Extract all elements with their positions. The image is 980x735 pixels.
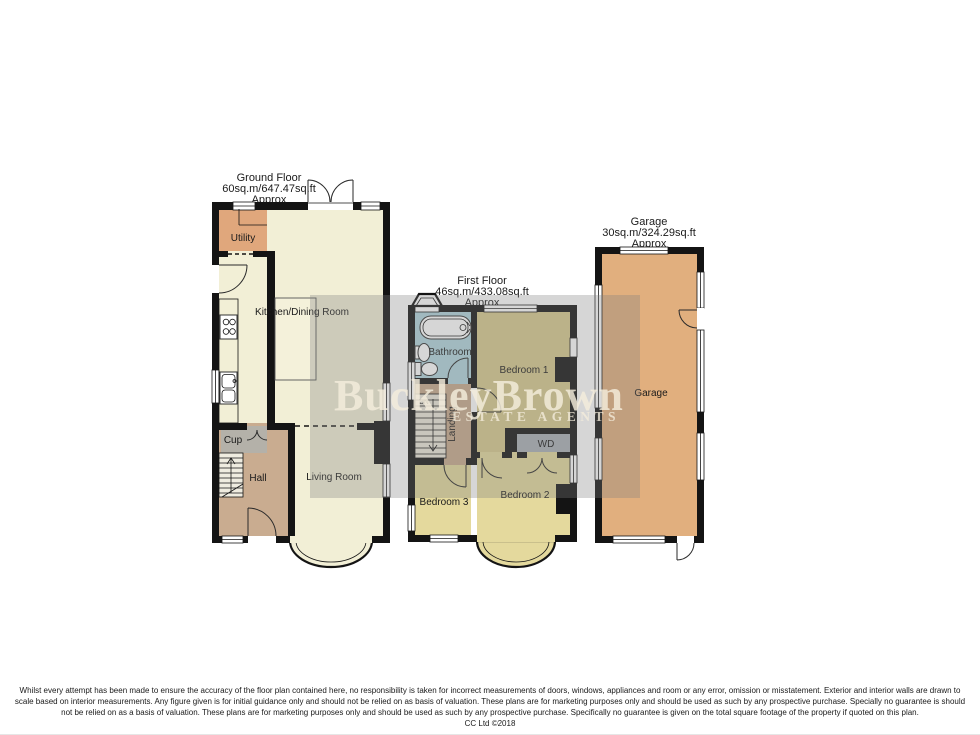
floorplan-drawing: Ground Floor 60sq.m/647.47sq.ft Approx xyxy=(0,0,980,684)
disclaimer-line: not be relied on as a basis of valuation… xyxy=(0,707,980,718)
disclaimer: Whilst every attempt has been made to en… xyxy=(0,685,980,729)
ground-floor-title: Ground Floor 60sq.m/647.47sq.ft Approx xyxy=(222,172,316,206)
disclaimer-line: Whilst every attempt has been made to en… xyxy=(0,685,980,696)
floorplan-page: Ground Floor 60sq.m/647.47sq.ft Approx xyxy=(0,0,980,735)
bedroom3-label: Bedroom 3 xyxy=(420,497,469,508)
stairs xyxy=(219,453,243,497)
copyright: CC Ltd ©2018 xyxy=(0,718,980,729)
watermark: BuckleyBrown ESTATE AGENTS xyxy=(310,295,640,498)
utility-room xyxy=(219,209,267,251)
garage-title: Garage 30sq.m/324.29sq.ft Approx xyxy=(602,216,696,250)
stove-icon xyxy=(220,315,237,339)
hall-label: Hall xyxy=(249,473,266,484)
bay-window xyxy=(290,541,372,567)
bay-window xyxy=(477,541,555,567)
watermark-tagline: ESTATE AGENTS xyxy=(452,409,620,424)
disclaimer-line: scale based on interior measurements. An… xyxy=(0,696,980,707)
utility-label: Utility xyxy=(231,233,255,244)
cup-label: Cup xyxy=(224,435,243,446)
sink-icon xyxy=(220,372,237,404)
